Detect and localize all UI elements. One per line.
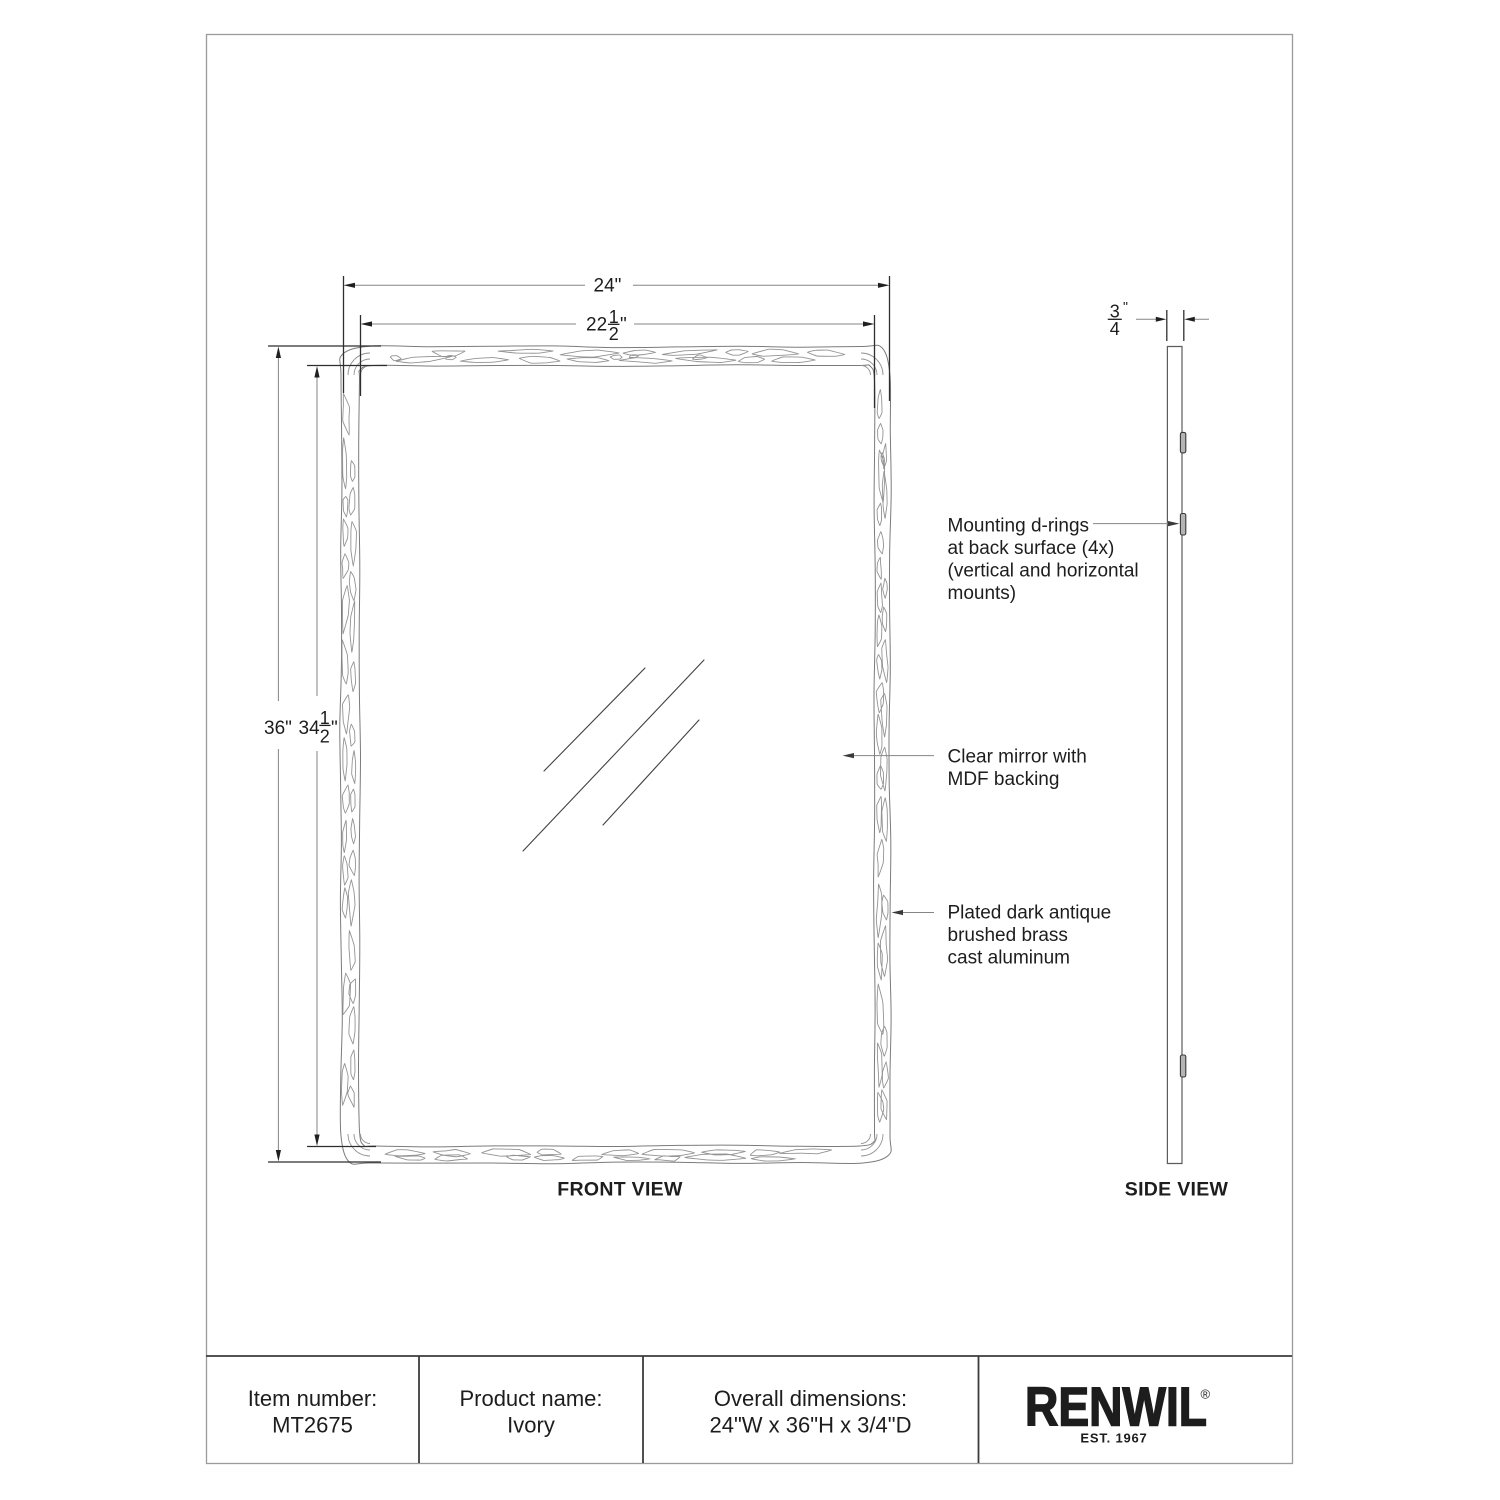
svg-text:mounts): mounts) (948, 583, 1017, 604)
svg-text:Overall dimensions:: Overall dimensions: (714, 1386, 907, 1411)
svg-text:Mounting d-rings: Mounting d-rings (948, 516, 1090, 537)
svg-text:34: 34 (299, 718, 321, 739)
svg-text:Clear mirror with: Clear mirror with (948, 747, 1087, 768)
svg-text:at back surface (4x): at back surface (4x) (948, 538, 1115, 559)
svg-text:MDF backing: MDF backing (948, 769, 1060, 790)
svg-text:RENWIL: RENWIL (1025, 1376, 1207, 1438)
svg-text:Ivory: Ivory (507, 1413, 555, 1438)
svg-text:22: 22 (586, 315, 607, 336)
svg-text:FRONT VIEW: FRONT VIEW (557, 1179, 683, 1201)
svg-text:Item number:: Item number: (248, 1386, 378, 1411)
svg-text:EST. 1967: EST. 1967 (1080, 1431, 1147, 1446)
svg-text:": " (620, 315, 627, 336)
svg-text:®: ® (1201, 1387, 1211, 1402)
svg-text:24": 24" (594, 276, 622, 297)
svg-text:Product name:: Product name: (459, 1386, 602, 1411)
svg-text:36": 36" (264, 718, 292, 739)
svg-text:4: 4 (1110, 319, 1120, 339)
svg-text:MT2675: MT2675 (272, 1413, 353, 1438)
svg-text:2: 2 (320, 726, 330, 746)
svg-text:cast aluminum: cast aluminum (948, 948, 1071, 969)
svg-text:24"W x 36"H x 3/4"D: 24"W x 36"H x 3/4"D (710, 1413, 912, 1438)
svg-text:2: 2 (609, 324, 619, 344)
svg-text:": " (1123, 299, 1128, 315)
svg-text:(vertical and horizontal: (vertical and horizontal (948, 561, 1139, 582)
svg-text:brushed brass: brushed brass (948, 925, 1068, 946)
svg-text:": " (331, 718, 338, 739)
svg-text:SIDE VIEW: SIDE VIEW (1125, 1179, 1229, 1201)
svg-text:Plated dark antique: Plated dark antique (948, 903, 1112, 924)
